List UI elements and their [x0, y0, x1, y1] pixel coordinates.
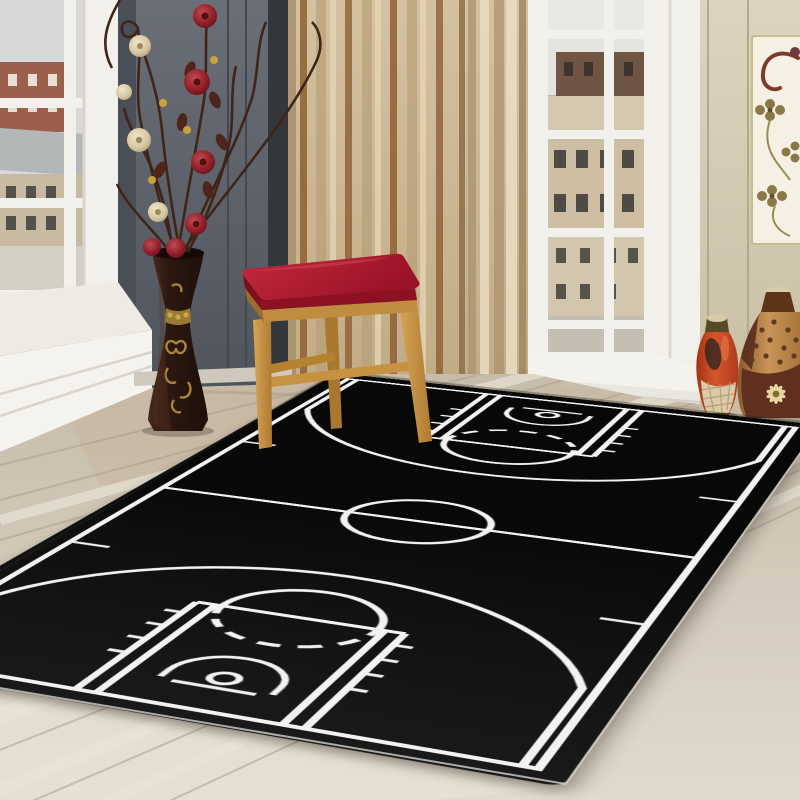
beige-curtain	[288, 0, 533, 380]
wall-art-panel	[752, 36, 800, 244]
room-scene	[0, 0, 800, 800]
right-french-window	[528, 0, 700, 422]
curtain-bamboo-stripes	[300, 0, 443, 380]
right-window-glass	[546, 0, 646, 352]
